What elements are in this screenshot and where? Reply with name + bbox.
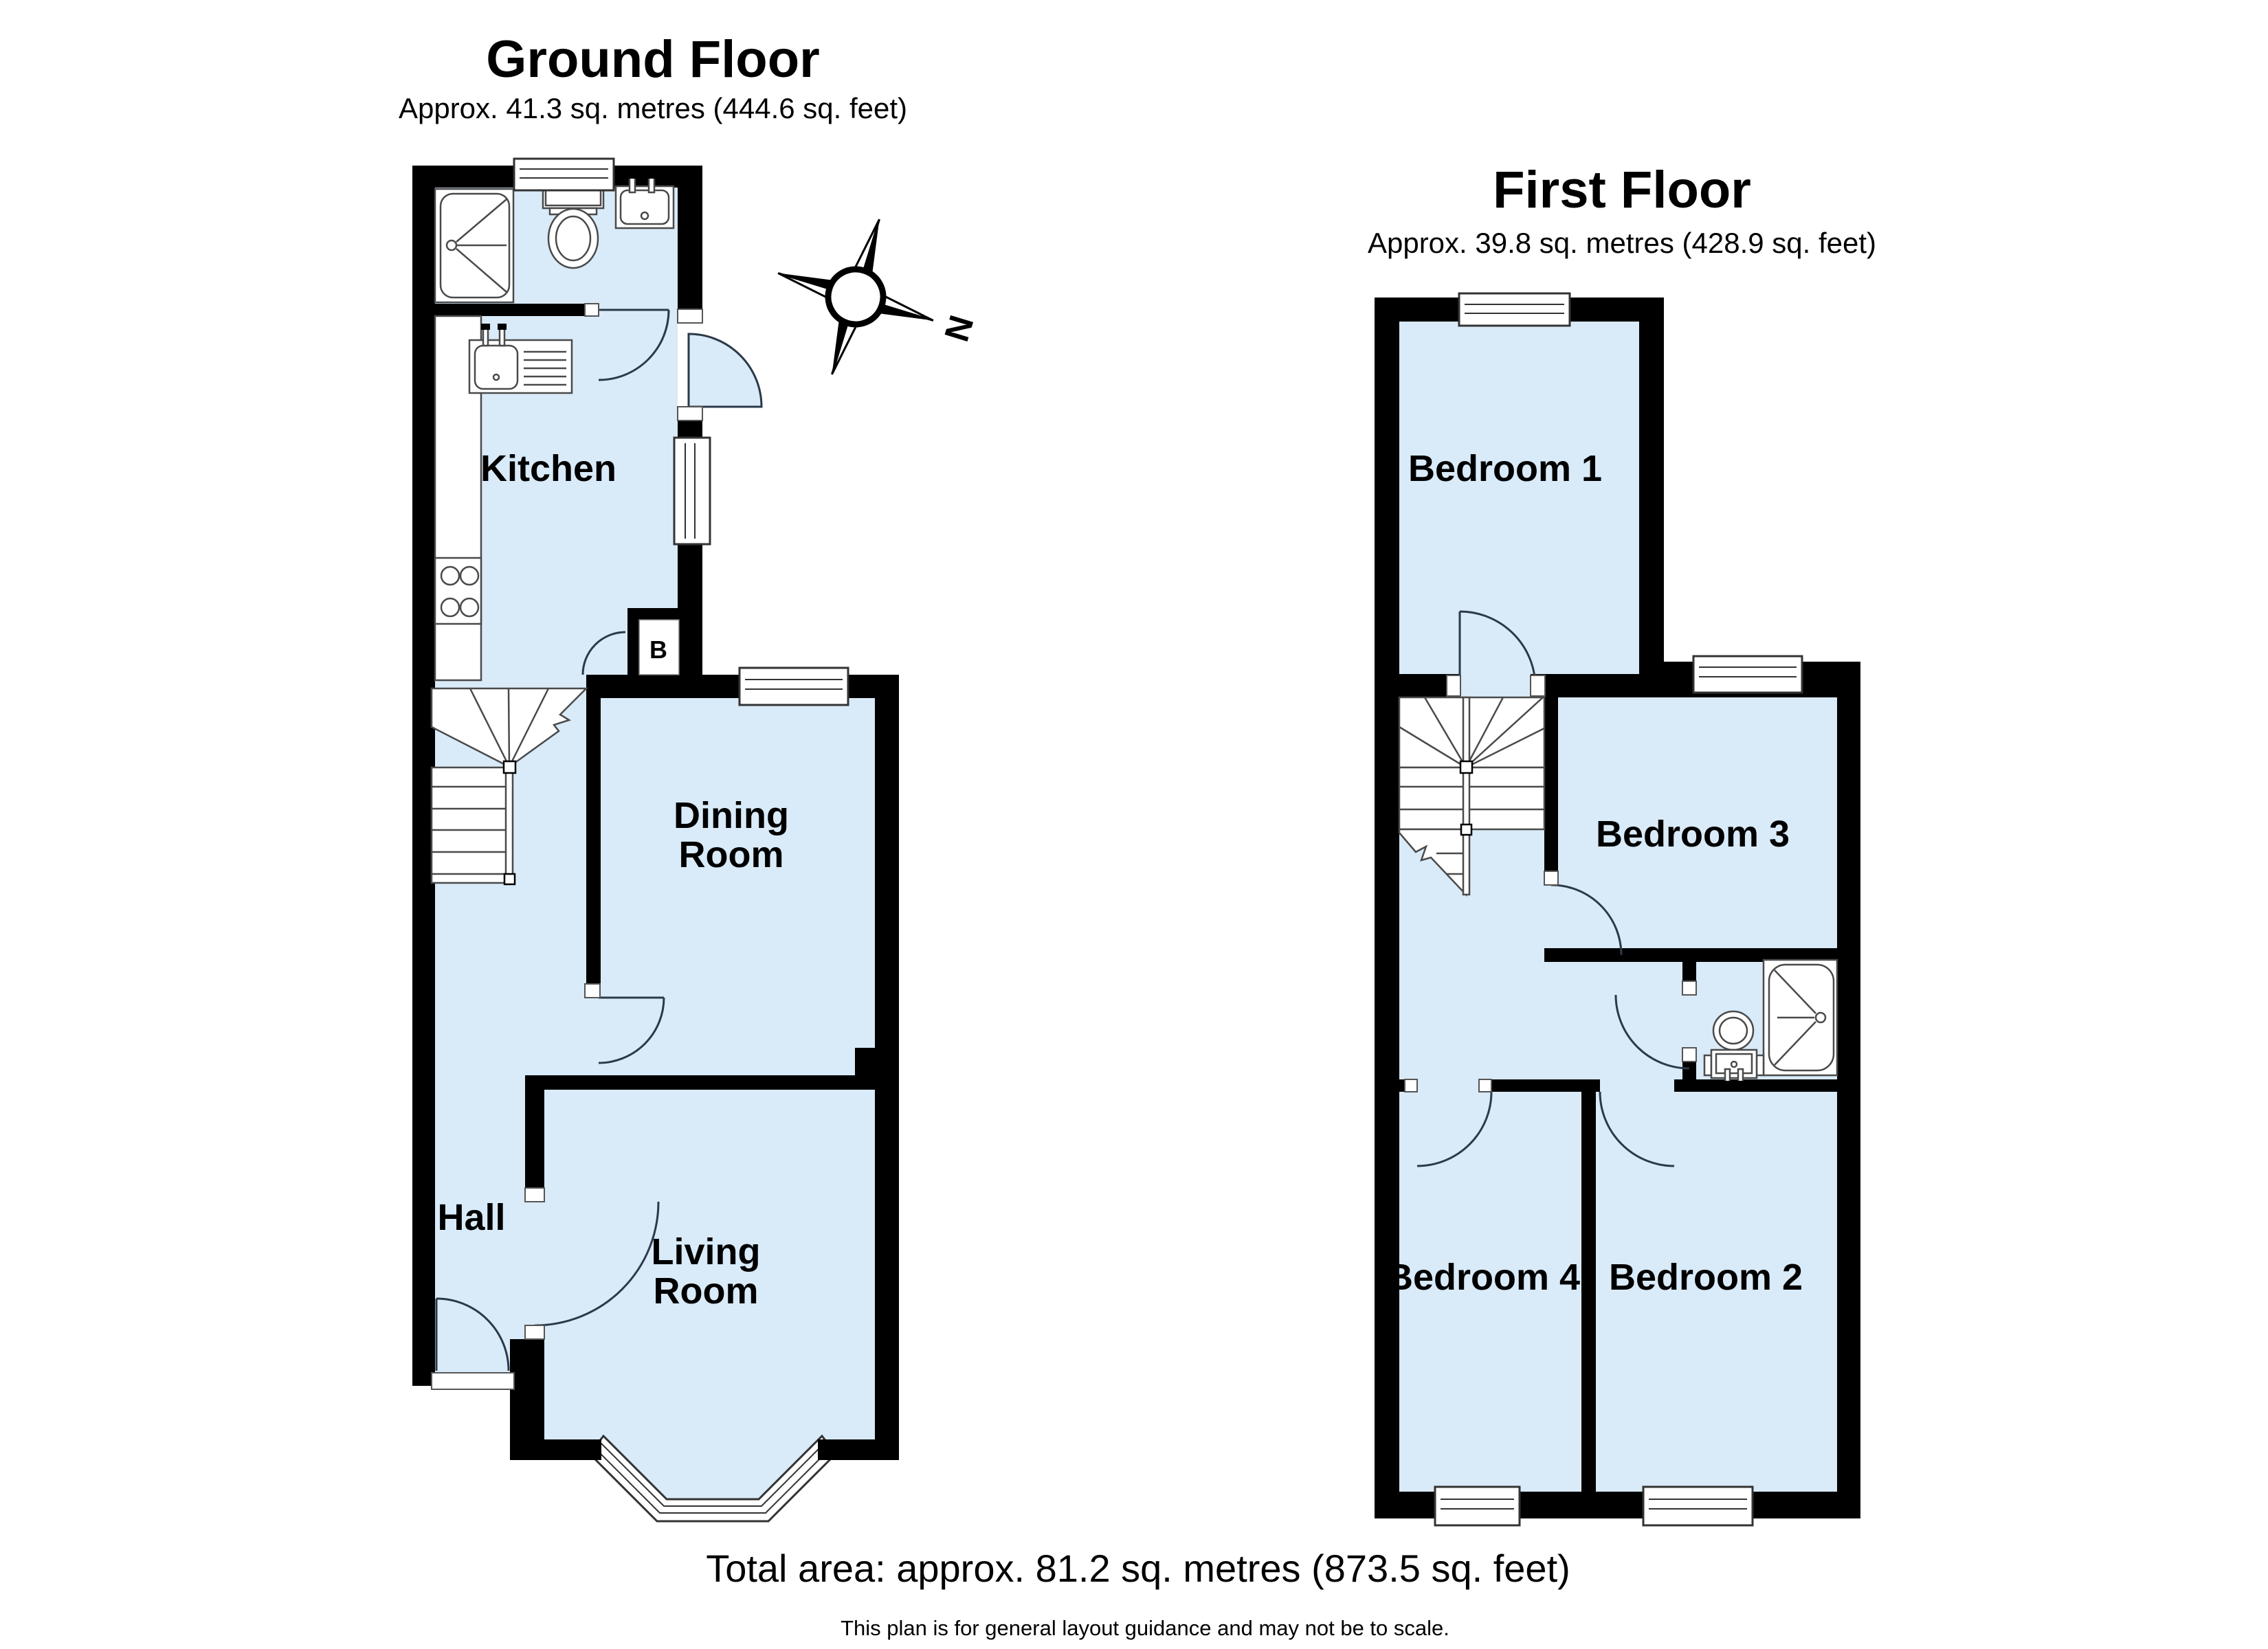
bedroom3-window (1693, 656, 1802, 693)
compass-icon: N (755, 196, 1001, 412)
room-label-hall: Hall (437, 1197, 505, 1238)
room-label-living-2: Room (654, 1270, 759, 1312)
kitchen-window (674, 438, 710, 544)
bedroom1-door-gap (1460, 674, 1531, 697)
newel-post (1460, 761, 1472, 773)
room-label-dining-1: Dining (674, 795, 789, 836)
room-label-bedroom2: Bedroom 2 (1609, 1257, 1803, 1298)
dining-room-floor (601, 698, 875, 1075)
living-door-gap (525, 1202, 544, 1325)
room-label-dining-2: Room (679, 834, 784, 875)
front-threshold (432, 1373, 514, 1389)
first-floor-subtitle: Approx. 39.8 sq. metres (428.9 sq. feet) (1368, 227, 1876, 259)
bedroom4-window (1435, 1487, 1520, 1525)
dining-door-gap (586, 985, 601, 1075)
room-label-kitchen: Kitchen (480, 448, 616, 489)
bedroom1-floor (1399, 322, 1639, 674)
bedroom2-window (1643, 1487, 1753, 1525)
back-door-arc (689, 334, 761, 407)
newel-post (504, 761, 515, 773)
room-label-living-1: Living (652, 1231, 761, 1272)
first-floor-plan: Bedroom 1 Bedroom 3 Bedroom 4 Bedroom 2 … (1368, 161, 1876, 1525)
bath-tub (1764, 960, 1837, 1075)
room-label-bedroom1: Bedroom 1 (1408, 448, 1602, 489)
dining-window (740, 668, 848, 705)
total-area-text: Total area: approx. 81.2 sq. metres (873… (706, 1547, 1570, 1590)
room-label-bedroom3: Bedroom 3 (1596, 814, 1790, 855)
ground-floor-title: Ground Floor (486, 30, 819, 89)
room-label-boiler: B (649, 636, 667, 664)
compass-north-label: N (937, 311, 981, 346)
ground-floor-subtitle: Approx. 41.3 sq. metres (444.6 sq. feet) (399, 92, 907, 124)
first-floor-title: First Floor (1493, 161, 1751, 219)
bathroom-window (514, 159, 614, 190)
footer: Total area: approx. 81.2 sq. metres (873… (706, 1547, 1570, 1649)
bedroom1-window (1459, 293, 1570, 326)
shower-tray (435, 189, 513, 302)
room-label-bedroom4: Bedroom 4 (1386, 1257, 1580, 1298)
ground-floor-plan: Kitchen Dining Room Hall Living Room B G… (399, 30, 907, 1521)
first-floor-rooms (1399, 322, 1837, 1492)
disclaimer-text: This plan is for general layout guidance… (841, 1616, 1449, 1640)
floorplan-page: Kitchen Dining Room Hall Living Room B G… (0, 0, 2268, 1649)
floorplan-drawing: Kitchen Dining Room Hall Living Room B G… (0, 0, 2268, 1649)
